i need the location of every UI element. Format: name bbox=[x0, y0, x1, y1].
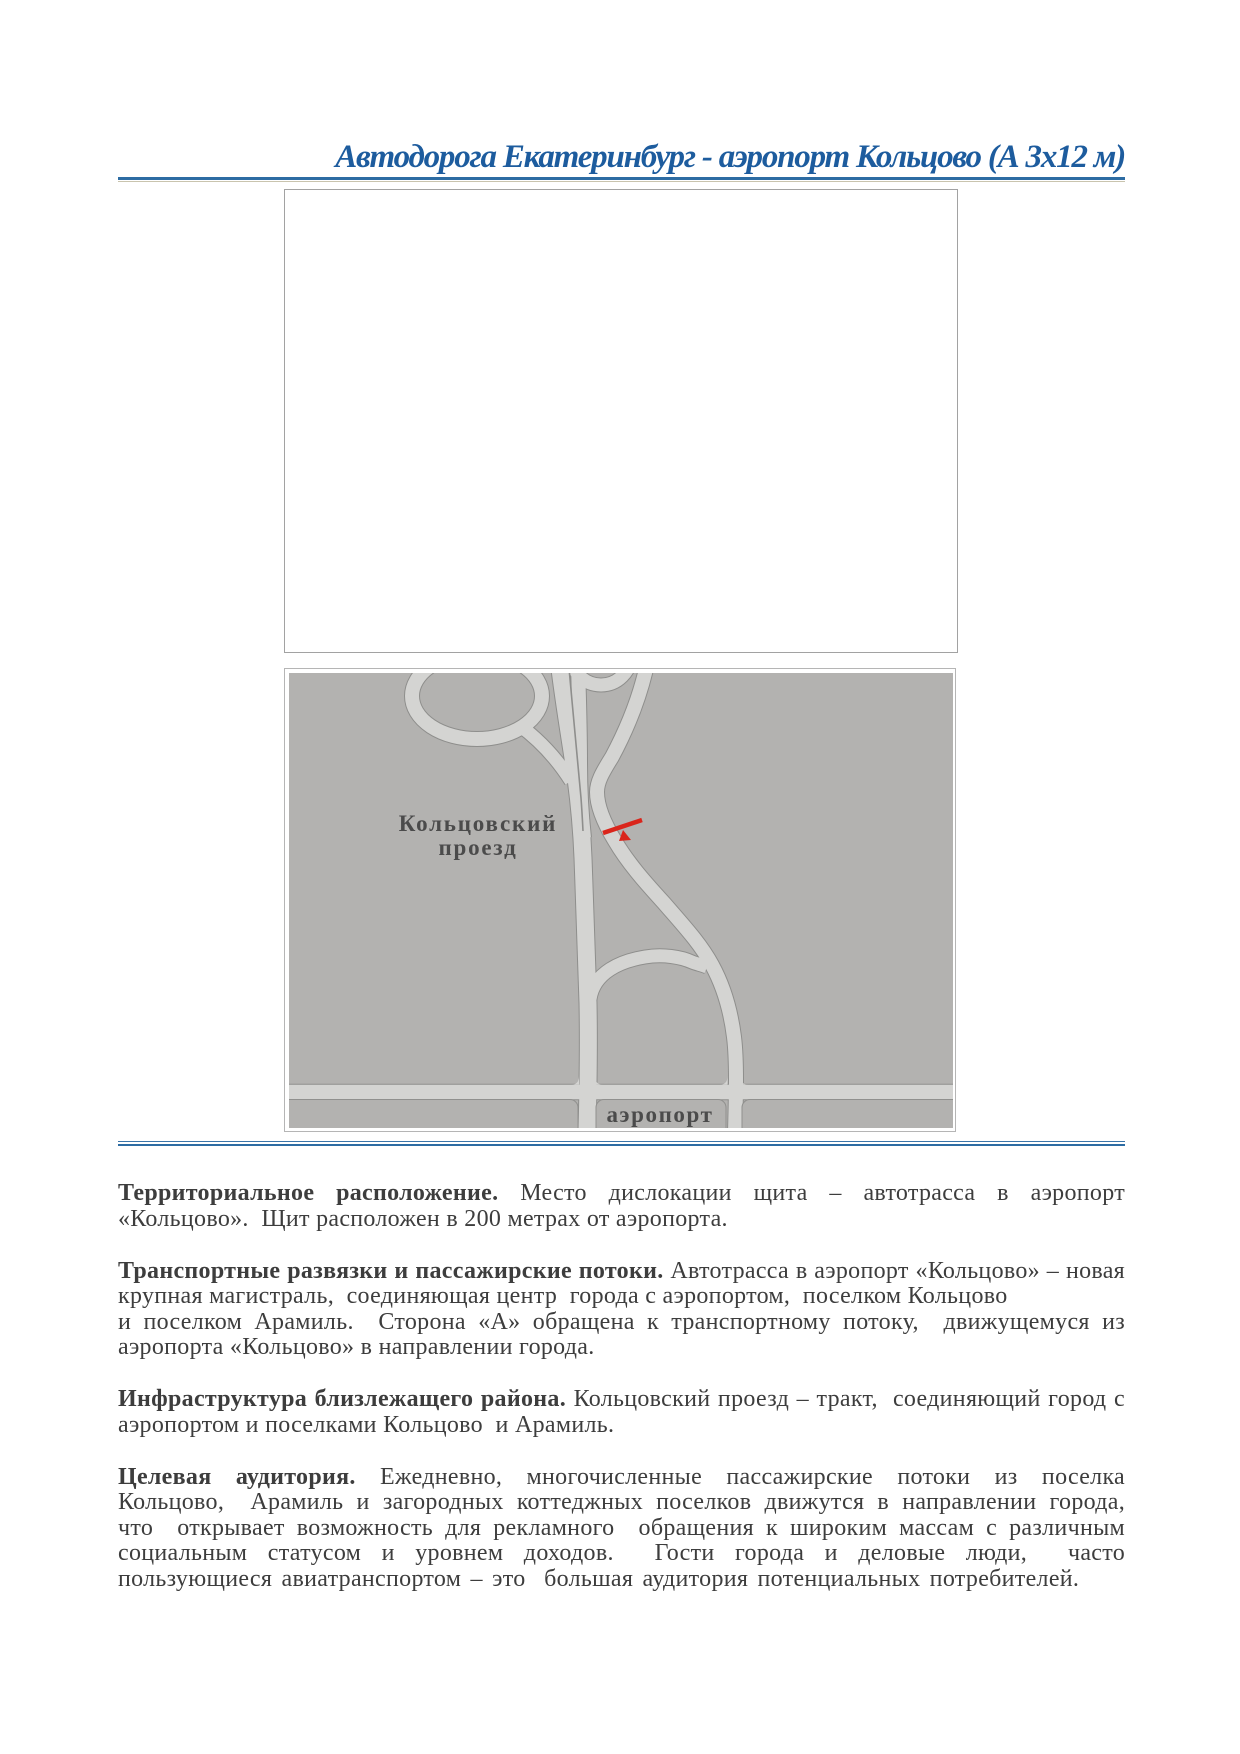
svg-text:Кольцовский: Кольцовский bbox=[399, 811, 557, 836]
svg-text:аэропорт: аэропорт bbox=[606, 1102, 713, 1127]
svg-text:проезд: проезд bbox=[438, 835, 517, 860]
